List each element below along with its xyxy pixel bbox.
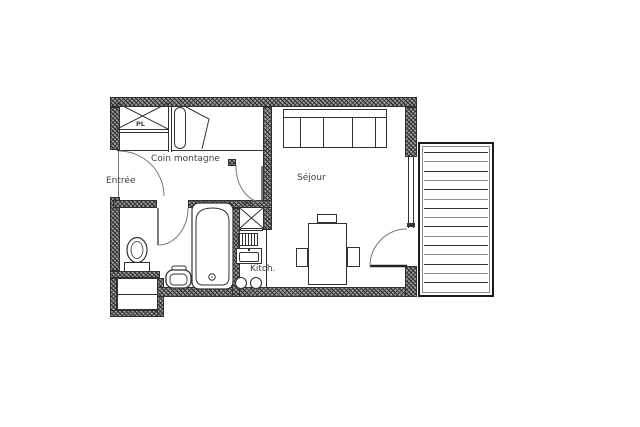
closet-hall-side-panel-b <box>171 103 172 152</box>
balcony <box>418 142 494 297</box>
wall-storage-bottom <box>110 310 164 317</box>
kitchen-boundary-line <box>266 230 267 287</box>
balcony-deck-line <box>424 254 488 255</box>
bathtub <box>192 203 233 289</box>
wall-right-lower <box>405 266 417 297</box>
label-entree: Entrée <box>106 176 136 186</box>
label-coin-montagne: Coin montagne <box>151 154 220 164</box>
floor-plan: Entrée Coin montagne Séjour Kitch. PL PL <box>0 0 640 427</box>
wall-hall-stub <box>228 159 236 166</box>
balcony-deck-line <box>424 152 488 153</box>
door-sejour <box>236 166 262 202</box>
sofa <box>283 109 387 148</box>
label-kitchen: Kitch. <box>250 264 275 274</box>
closet-hall-shelf-b <box>117 132 168 133</box>
balcony-deck-line <box>424 208 488 209</box>
door-bathroom <box>158 208 188 245</box>
washbasin <box>166 266 191 288</box>
chair-right <box>347 247 360 267</box>
balcony-deck-line <box>424 217 488 218</box>
toilet <box>127 238 147 263</box>
wall-bath-top-left <box>113 200 157 208</box>
chair-left <box>296 248 308 267</box>
sofa-divider-3 <box>352 117 353 147</box>
closet-kitchen-front <box>240 228 263 231</box>
window-sill-tick <box>407 223 415 227</box>
wall-bottom <box>157 287 417 297</box>
dish-drainer <box>238 233 258 246</box>
closet-hall-shelf-a <box>117 129 168 130</box>
sofa-divider-4 <box>375 117 376 147</box>
dining-table <box>308 223 347 285</box>
wall-right-upper <box>405 107 417 157</box>
wall-bed-right <box>263 107 272 230</box>
wall-bath-top-right <box>188 200 272 208</box>
balcony-deck-line <box>424 180 488 181</box>
toilet-tank <box>124 262 150 272</box>
bed-front-line <box>172 150 263 151</box>
sofa-divider-1 <box>300 117 301 147</box>
balcony-deck-line <box>424 264 488 265</box>
label-closet-kitchen: PL <box>244 201 253 208</box>
closet-hall-front-line <box>117 150 169 151</box>
sofa-divider-2 <box>323 117 324 147</box>
window-line-inner <box>413 157 414 228</box>
kitchen-sink-faucet <box>248 249 250 251</box>
wall-storage-right <box>157 278 164 317</box>
wall-wc-band <box>110 271 160 278</box>
balcony-deck-line <box>424 199 488 200</box>
balcony-deck-line <box>424 226 488 227</box>
balcony-deck-line <box>424 171 488 172</box>
entrance-threshold-line <box>118 150 119 197</box>
closet-kitchen-x-icon <box>240 208 263 228</box>
balcony-deck-line <box>424 189 488 190</box>
storage-box-divider <box>118 294 157 295</box>
balcony-deck-line <box>424 245 488 246</box>
window-line-outer <box>408 157 409 228</box>
balcony-deck-lines <box>424 148 488 291</box>
kitchen-sink-basin <box>239 252 259 262</box>
balcony-deck-line <box>424 273 488 274</box>
balcony-deck-line <box>424 282 488 283</box>
bed-blanket <box>186 107 209 149</box>
label-closet-hall: PL <box>136 121 145 128</box>
chair-top <box>317 214 337 223</box>
wall-left-mid <box>110 197 120 271</box>
bed-pillow <box>174 107 186 149</box>
balcony-deck-line <box>424 161 488 162</box>
wall-top <box>110 97 417 107</box>
balcony-deck-line <box>424 236 488 237</box>
door-balcony <box>370 229 407 266</box>
closet-hall-side-panel-a <box>168 103 169 152</box>
label-sejour: Séjour <box>297 173 326 183</box>
